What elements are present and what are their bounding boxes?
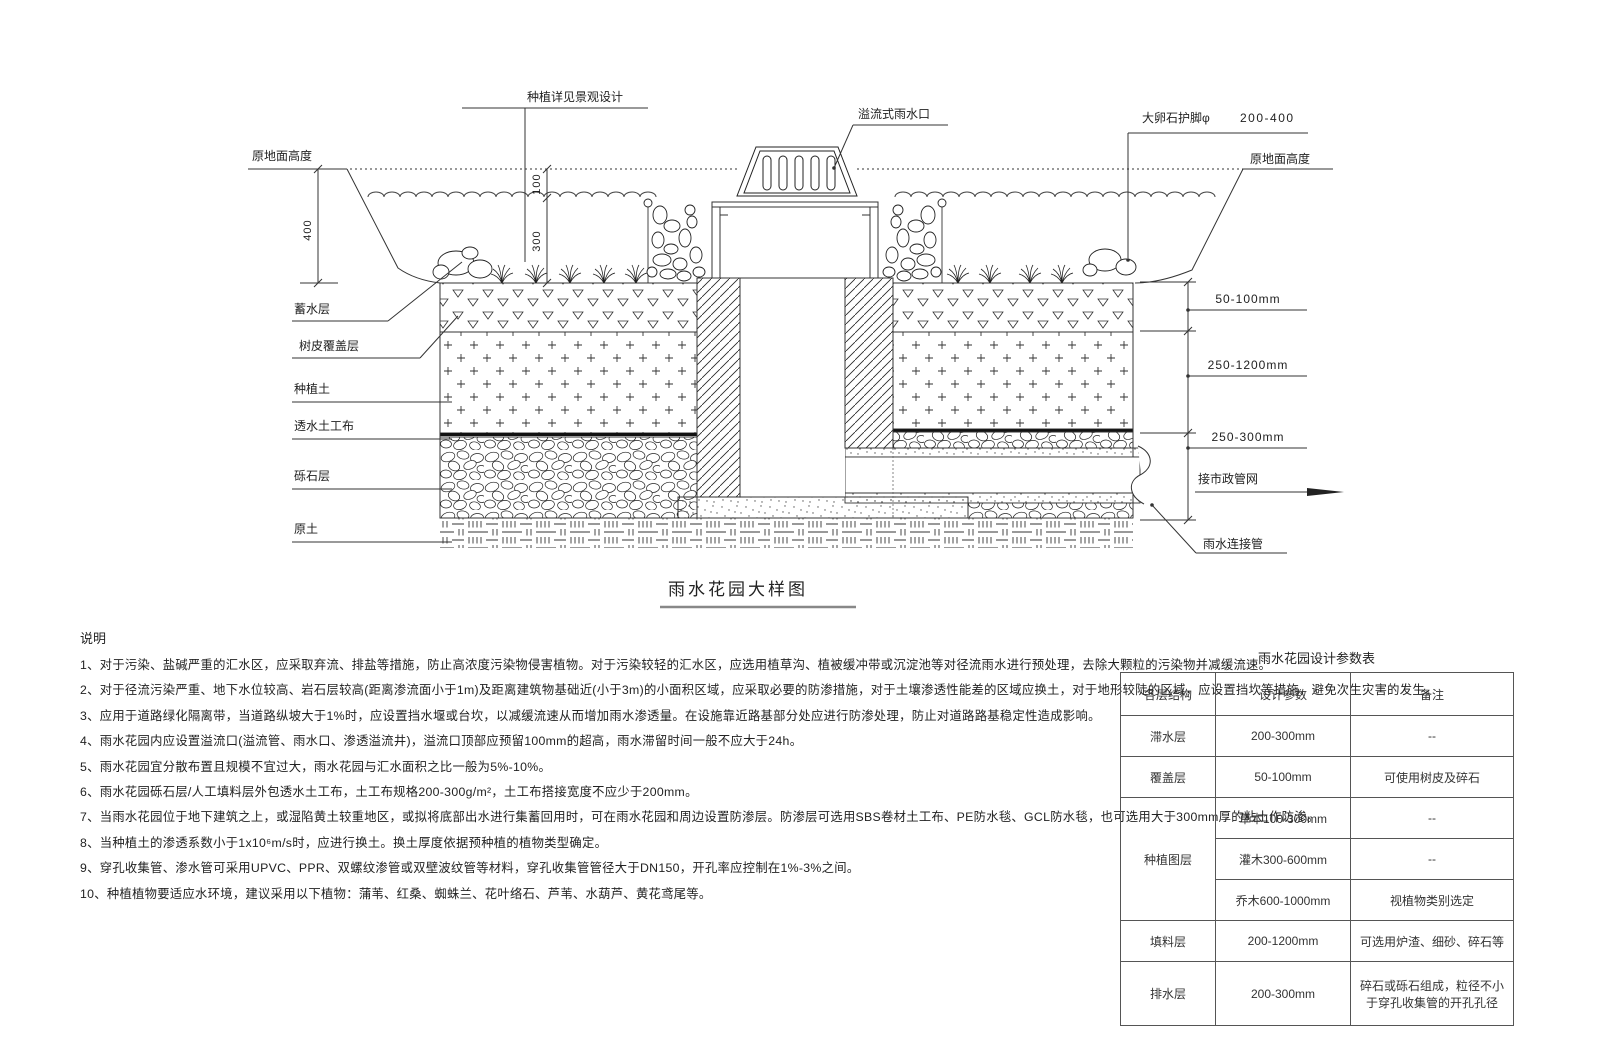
overflow-inlet-box xyxy=(712,202,878,278)
dim-100-label: 100 xyxy=(531,173,543,194)
cell-remark: 可使用树皮及碎石 xyxy=(1351,757,1514,798)
boulder-size-label: 200-400 xyxy=(1240,111,1295,125)
ground-level-label-right: 原地面高度 xyxy=(1250,151,1310,166)
layer-label-gravel: 砾石层 xyxy=(294,469,330,483)
table-header-row: 各层结构 设计参数 备注 xyxy=(1121,673,1514,716)
cell-remark: -- xyxy=(1351,839,1514,880)
col-header-remark: 备注 xyxy=(1351,673,1514,716)
connector-pipe-label: 雨水连接管 xyxy=(1203,536,1263,551)
cell-layer: 滞水层 xyxy=(1121,716,1216,757)
planting-note-label: 种植详见景观设计 xyxy=(527,89,623,104)
table-row: 排水层 200-300mm 碎石或砾石组成，粒径不小于穿孔收集管的开孔孔径 xyxy=(1121,962,1514,1026)
right-dimensions: 50-100mm 250-1200mm 250-300mm xyxy=(1140,278,1307,524)
parameter-table-title: 雨水花园设计参数表 xyxy=(1120,648,1513,667)
rock-pile-right xyxy=(883,199,946,283)
cell-param: 草本100-300mm xyxy=(1216,798,1351,839)
cell-param: 50-100mm xyxy=(1216,757,1351,798)
table-row: 滞水层 200-300mm -- xyxy=(1121,716,1514,757)
left-bed-layers xyxy=(440,283,697,518)
dim-drain-label: 250-300mm xyxy=(1211,430,1284,444)
col-header-layer: 各层结构 xyxy=(1121,673,1216,716)
cell-layer: 覆盖层 xyxy=(1121,757,1216,798)
cross-section-drawing: 400 100 300 种植详见景观设计 溢流式雨水口 大卵石护脚φ 200-4… xyxy=(0,0,1604,622)
parameter-table: 各层结构 设计参数 备注 滞水层 200-300mm -- 覆盖层 50-100… xyxy=(1120,672,1514,1026)
boulder-foot-label: 大卵石护脚φ xyxy=(1142,110,1210,125)
layer-label-storage: 蓄水层 xyxy=(294,302,330,316)
rain-garden-detail-sheet: 400 100 300 种植详见景观设计 溢流式雨水口 大卵石护脚φ 200-4… xyxy=(0,0,1604,1062)
dim-freeboard-storage: 100 300 xyxy=(531,165,551,287)
overflow-inlet-label: 溢流式雨水口 xyxy=(858,107,930,121)
rock-pile-left xyxy=(644,199,705,283)
layer-label-mulch: 树皮覆盖层 xyxy=(299,338,359,353)
under-pipe-gravel xyxy=(968,503,1133,518)
dim-300-label: 300 xyxy=(531,230,543,251)
cell-layer: 排水层 xyxy=(1121,962,1216,1026)
table-row: 种植图层 草本100-300mm -- xyxy=(1121,798,1514,839)
cell-param: 200-300mm xyxy=(1216,962,1351,1026)
table-row: 填料层 200-1200mm 可选用炉渣、细砂、碎石等 xyxy=(1121,921,1514,962)
municipal-network-label: 接市政管网 xyxy=(1198,471,1258,486)
pipe-labels: 接市政管网 雨水连接管 xyxy=(1150,471,1344,553)
boulder-left xyxy=(433,247,492,279)
notes-heading: 说明 xyxy=(80,628,1600,647)
dim-total-depth: 400 xyxy=(300,165,338,287)
dim-400-label: 400 xyxy=(302,219,314,240)
layer-labels: 蓄水层 树皮覆盖层 种植土 透水土工布 砾石层 原土 xyxy=(292,262,462,542)
flow-arrow xyxy=(1307,488,1344,496)
ground-level-label-left: 原地面高度 xyxy=(252,148,312,163)
cell-remark: -- xyxy=(1351,716,1514,757)
cell-remark: 可选用炉渣、细砂、碎石等 xyxy=(1351,921,1514,962)
drawing-title: 雨水花园大样图 xyxy=(660,580,856,607)
native-soil-band xyxy=(440,518,1133,548)
right-bed-layers xyxy=(893,283,1133,448)
cell-param: 乔木600-1000mm xyxy=(1216,880,1351,921)
drawing-title-text: 雨水花园大样图 xyxy=(668,580,808,599)
dim-soil-label: 250-1200mm xyxy=(1208,358,1289,372)
layer-label-soil: 种植土 xyxy=(294,381,330,396)
cell-remark: 视植物类别选定 xyxy=(1351,880,1514,921)
cell-remark: 碎石或砾石组成，粒径不小于穿孔收集管的开孔孔径 xyxy=(1351,962,1514,1026)
table-row: 覆盖层 50-100mm 可使用树皮及碎石 xyxy=(1121,757,1514,798)
layer-label-geotextile: 透水土工布 xyxy=(294,419,354,433)
cell-param: 200-1200mm xyxy=(1216,921,1351,962)
cell-param: 灌木300-600mm xyxy=(1216,839,1351,880)
cell-layer: 填料层 xyxy=(1121,921,1216,962)
cell-layer: 种植图层 xyxy=(1121,798,1216,921)
layer-label-native-soil: 原土 xyxy=(294,522,318,536)
cell-param: 200-300mm xyxy=(1216,716,1351,757)
dim-mulch-label: 50-100mm xyxy=(1215,292,1280,306)
col-header-param: 设计参数 xyxy=(1216,673,1351,716)
cell-remark: -- xyxy=(1351,798,1514,839)
overflow-grate xyxy=(737,147,857,196)
